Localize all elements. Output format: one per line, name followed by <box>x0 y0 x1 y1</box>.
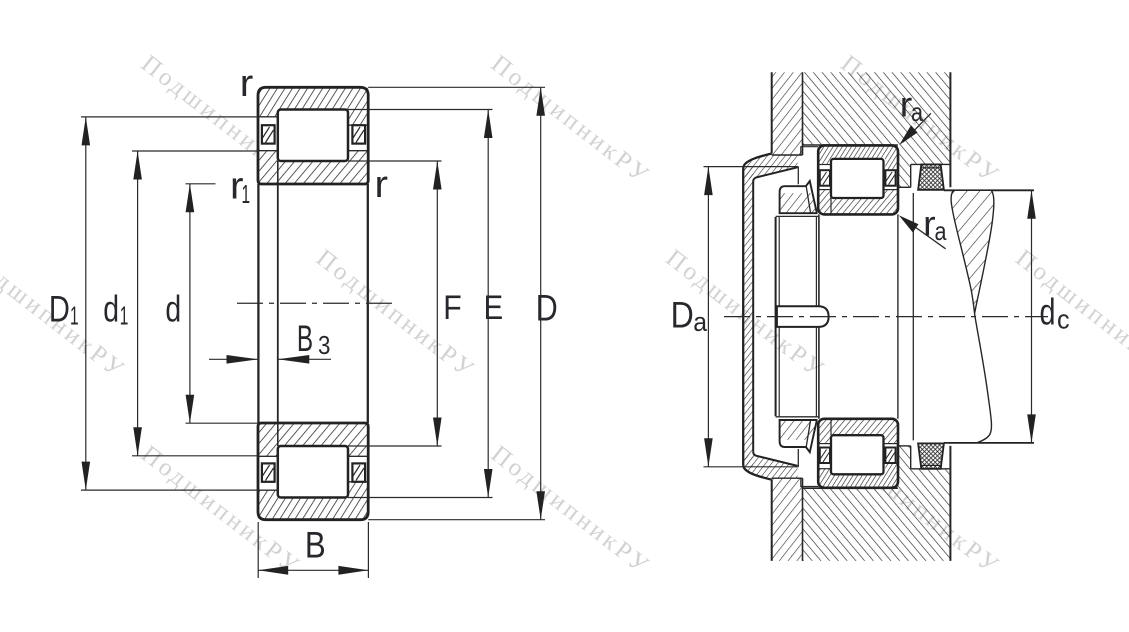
svg-text:d: d <box>103 289 119 330</box>
svg-text:D: D <box>536 288 558 329</box>
svg-text:E: E <box>484 289 504 327</box>
svg-text:ПодшипникРУ: ПодшипникРУ <box>1011 245 1129 385</box>
svg-text:c: c <box>1057 304 1070 334</box>
svg-text:d: d <box>1040 292 1056 333</box>
svg-text:D: D <box>671 294 694 335</box>
svg-text:a: a <box>935 216 947 246</box>
svg-text:ПодшипникРУ: ПодшипникРУ <box>486 441 656 581</box>
svg-text:D: D <box>49 289 70 330</box>
svg-text:1: 1 <box>70 301 79 331</box>
svg-text:3: 3 <box>318 330 330 360</box>
svg-text:1: 1 <box>242 179 251 209</box>
svg-text:B: B <box>305 525 326 566</box>
svg-text:d: d <box>165 289 181 330</box>
svg-text:a: a <box>911 97 923 127</box>
svg-text:r: r <box>375 164 389 206</box>
svg-text:a: a <box>693 307 708 337</box>
svg-text:1: 1 <box>120 301 129 331</box>
svg-text:F: F <box>443 289 462 327</box>
svg-text:ПодшипникРУ: ПодшипникРУ <box>486 50 656 190</box>
svg-text:B: B <box>297 318 313 359</box>
svg-text:r: r <box>240 63 254 105</box>
